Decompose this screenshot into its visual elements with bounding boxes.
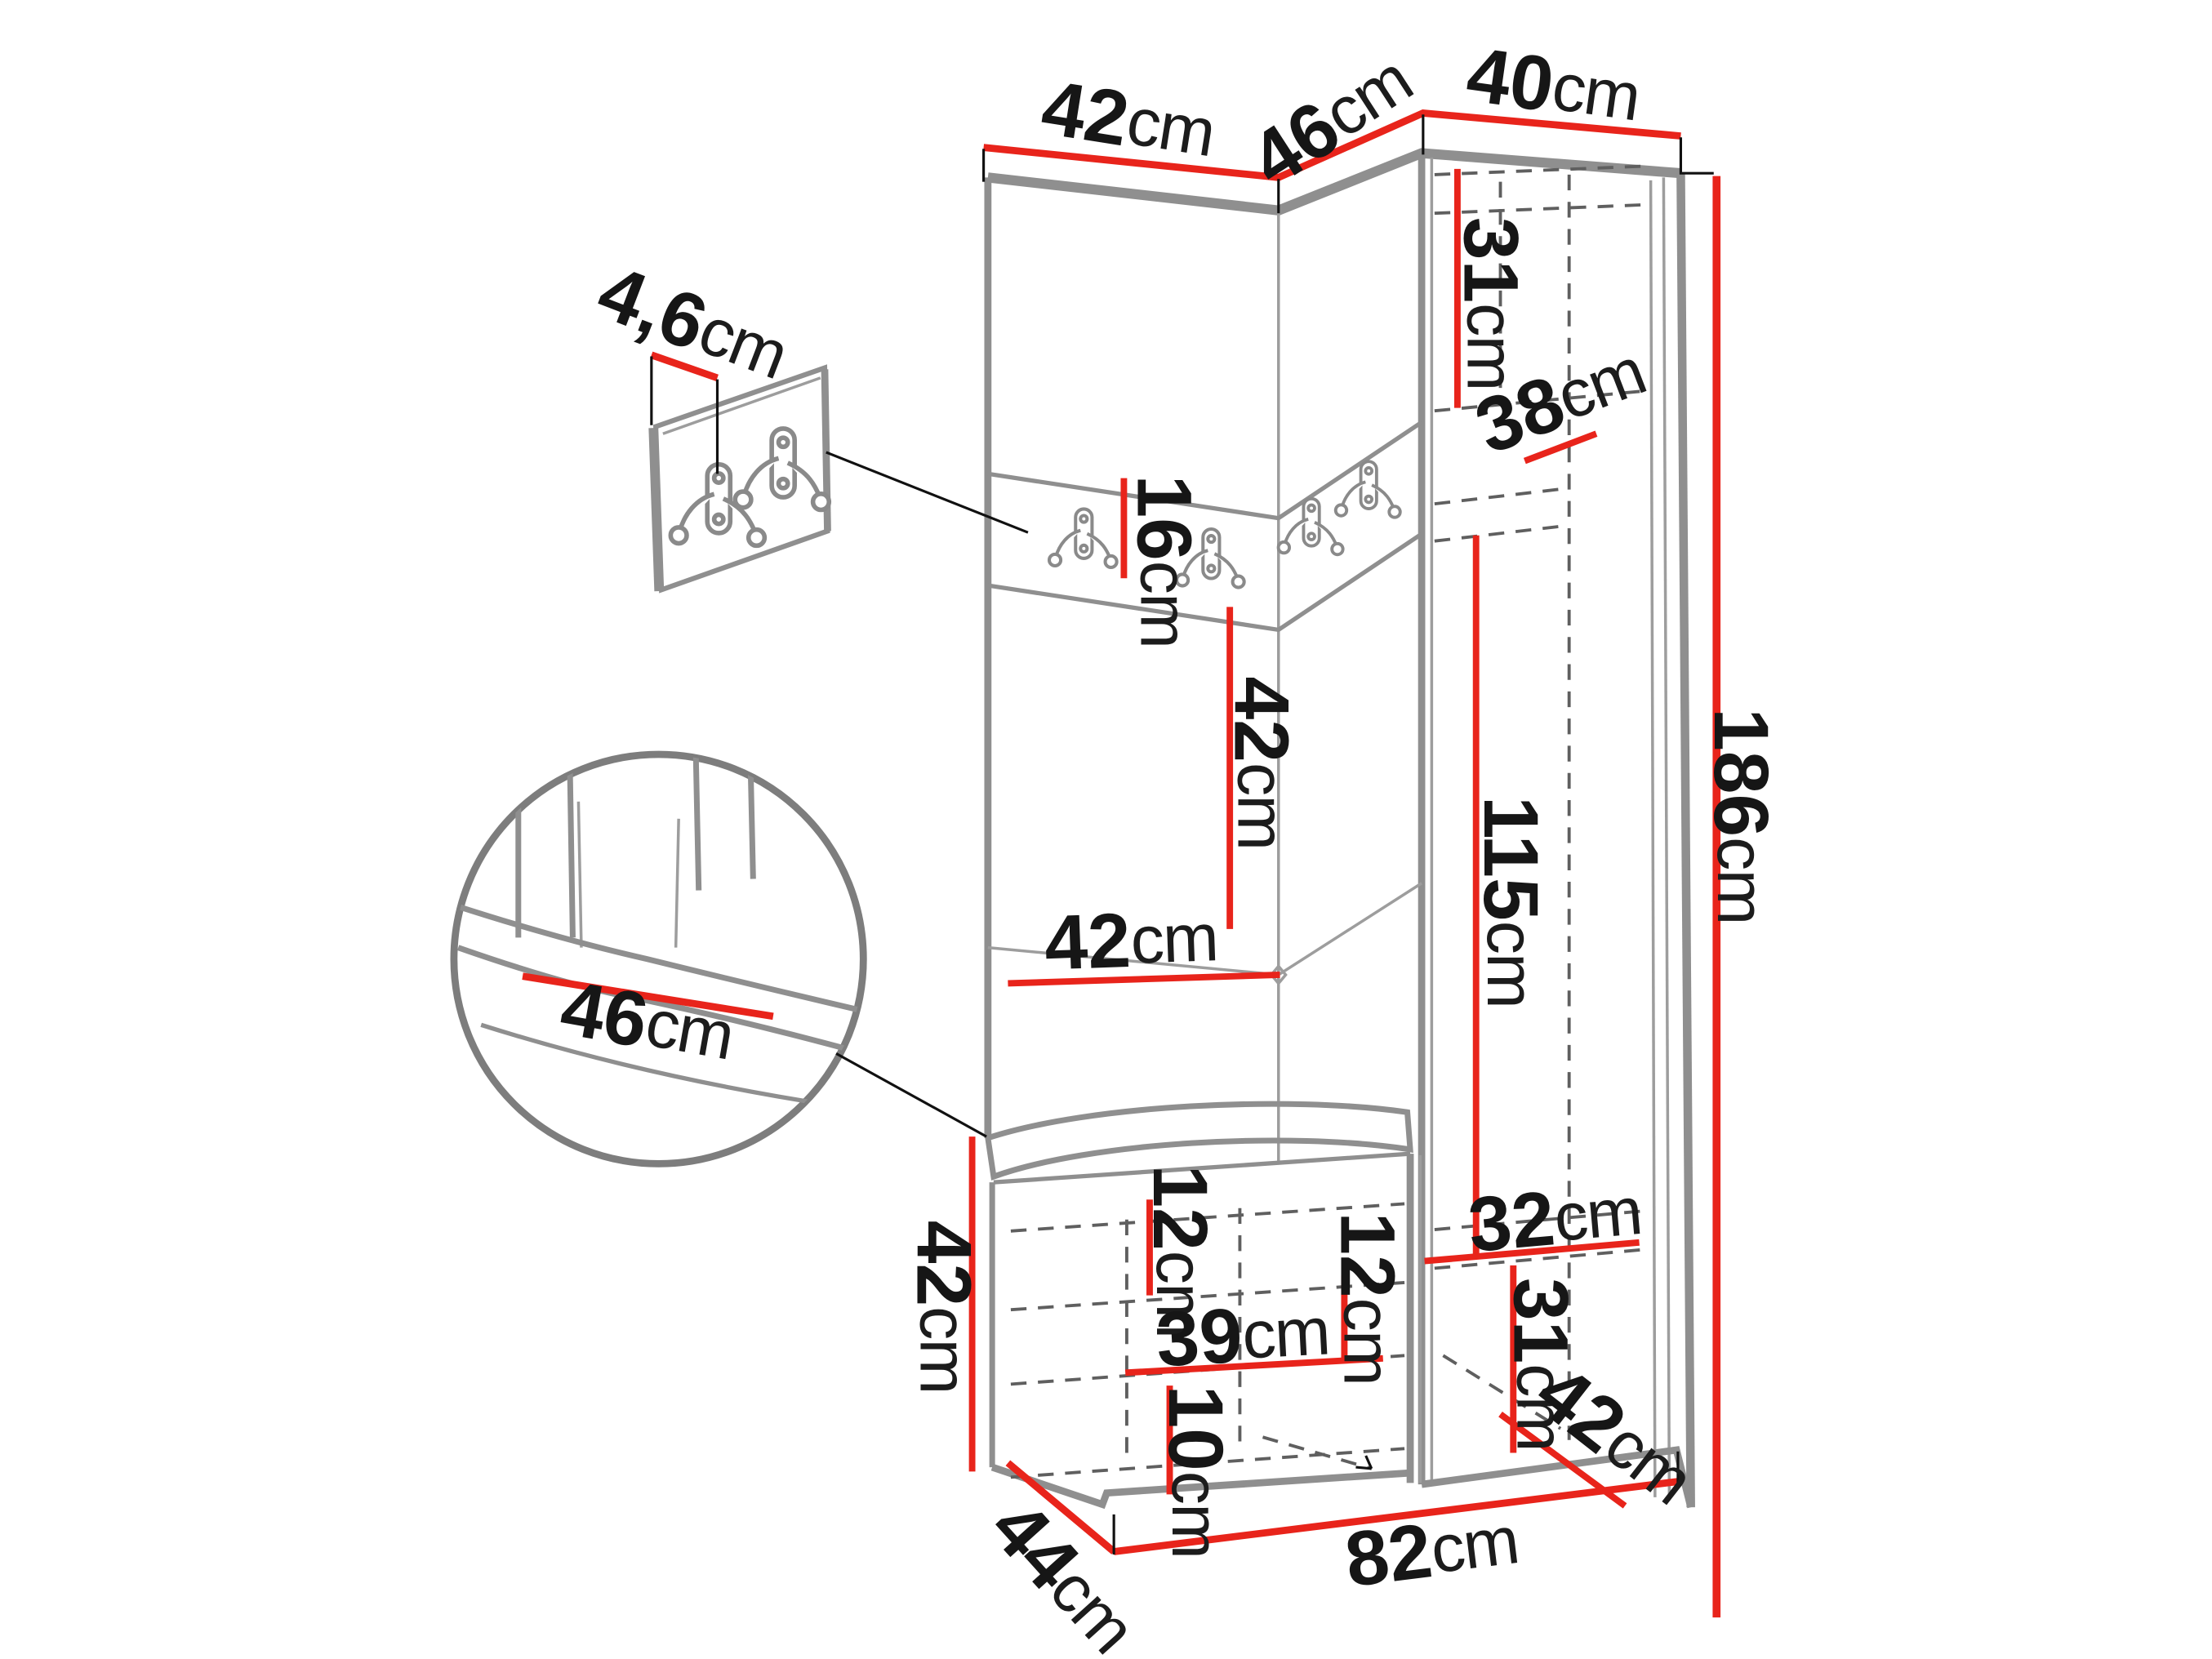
- dim-label-wardrobe-inner-height: 115cm: [1467, 796, 1554, 1007]
- dim-label-total-height: 186cm: [1698, 708, 1784, 923]
- wardrobe-door-edge-1: [1663, 177, 1669, 1500]
- dim-label-bench-height: 42cm: [901, 1221, 987, 1394]
- dim-label-base-width: 82cm: [1341, 1497, 1523, 1603]
- bench-corner-detail-circle: [452, 728, 863, 1163]
- coat-hook-icon: [735, 429, 829, 510]
- panel-detail-pointer-line: [826, 452, 1028, 532]
- panel-face: [656, 368, 827, 590]
- dim-label-hook-strip-height: 16cm: [1121, 474, 1208, 647]
- dim-label-panel-thickness: 4,6cm: [587, 248, 799, 398]
- wall-hook-panel-detail: [653, 368, 830, 592]
- wardrobe-door-edge-2: [1651, 180, 1655, 1497]
- dim-label-wardrobe-bottom-width: 32cm: [1465, 1168, 1645, 1269]
- dim-label-bench-bottom-space: 10cm: [1152, 1385, 1239, 1559]
- coat-hook-icon: [1279, 499, 1343, 554]
- coat-hook-icon: [1336, 461, 1400, 517]
- hallway-furniture-dimension-diagram: 42cm 46cm 40cm 4,6cm 16cm 42cm 42cm 31cm…: [0, 0, 2212, 1659]
- dim-label-mid-panel-height: 42cm: [1218, 677, 1305, 850]
- panel-left-edge: [653, 428, 659, 591]
- dim-label-wardrobe-top-height: 31cm: [1447, 217, 1533, 390]
- dim-label-bench-shelf-drop: 12cm: [1324, 1212, 1410, 1385]
- wardrobe-right-edge: [1680, 173, 1690, 1507]
- dim-label-bench-shelf-width: 39cm: [1154, 1288, 1331, 1383]
- dim-label-mid-panel-width: 42cm: [1044, 894, 1219, 986]
- coat-hook-icon: [1049, 509, 1117, 567]
- pointer-lines: [826, 452, 1028, 1136]
- circle-detail-pointer-line: [836, 1053, 986, 1136]
- panel-top-bevel: [663, 378, 821, 434]
